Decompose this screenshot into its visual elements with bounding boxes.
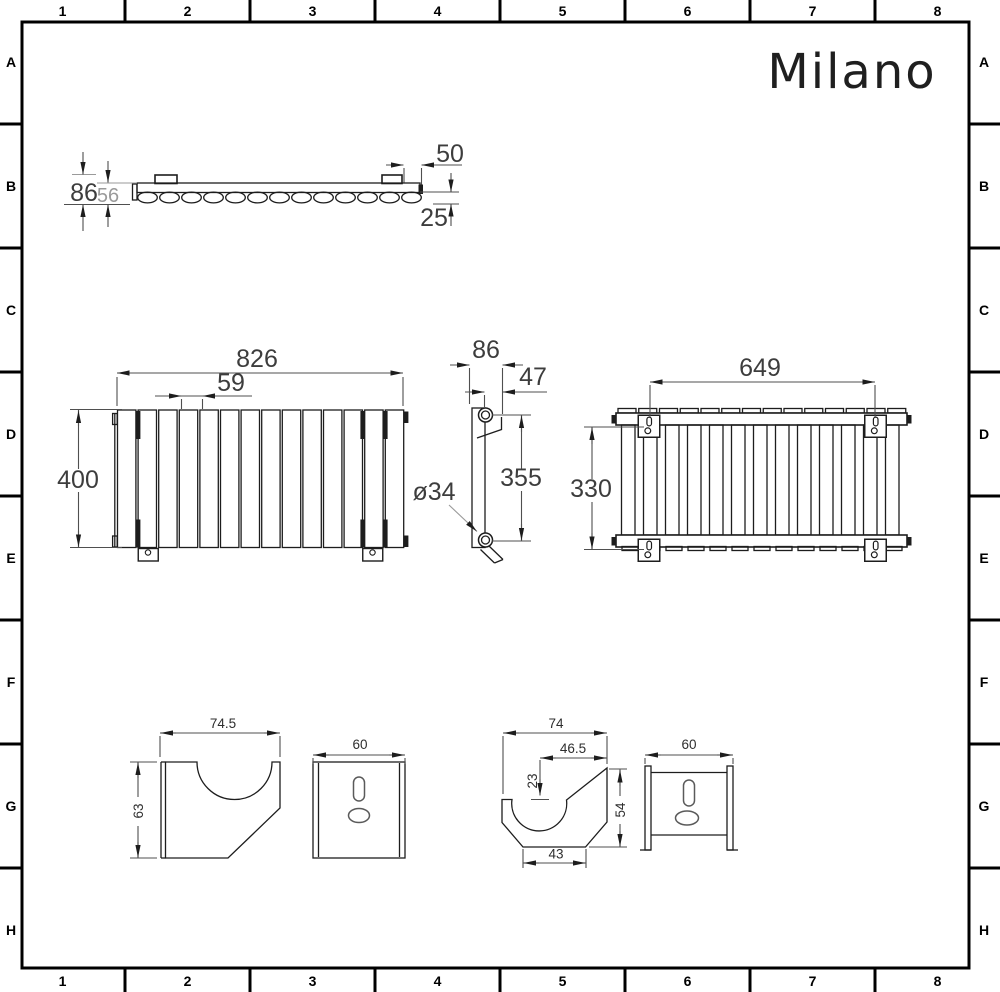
rear-view-wall-bracket	[865, 539, 887, 561]
grid-col-label: 8	[934, 3, 942, 19]
side-view-bottom-pipe	[479, 533, 493, 547]
dim-bracket-a-face-width: 60	[352, 737, 367, 752]
rear-view-wall-bracket	[638, 539, 660, 561]
grid-row-label: F	[7, 674, 16, 690]
front-view: 826 59 400	[57, 345, 408, 561]
grid-col-label: 4	[434, 973, 442, 989]
top-view: 86 56 50 25	[64, 140, 464, 232]
rear-view-wall-bracket	[638, 415, 660, 437]
rear-view-end-tab	[612, 537, 617, 546]
dim-front-height: 400	[57, 466, 99, 494]
dim-bracket-a-height: 63	[131, 803, 146, 818]
grid-row-label: F	[980, 674, 989, 690]
top-view-body	[137, 183, 420, 193]
grid-row-label: B	[979, 178, 989, 194]
rear-view-end-tab	[907, 415, 912, 424]
grid-row-label: E	[6, 550, 15, 566]
dim-rear-bracket-centres-v: 330	[570, 475, 612, 503]
frame-ticks	[0, 0, 1000, 992]
dim-top-end-offset: 50	[436, 140, 464, 168]
brand-logo: Milano	[767, 44, 936, 100]
side-view-panel	[472, 408, 485, 548]
rear-view-end-tab	[907, 537, 912, 546]
top-view-right-cap	[419, 185, 424, 195]
sheet-frame: 1 2 3 4 5 6 7 8 1 2 3 4 5 6 7 8 A B C D …	[0, 0, 1000, 992]
dim-top-tube-depth: 25	[420, 204, 448, 232]
grid-row-label: E	[979, 550, 988, 566]
dim-bracket-b-face-width: 60	[681, 737, 696, 752]
bracket-b-flange	[727, 766, 733, 850]
bracket-b-slot	[684, 780, 695, 806]
grid-col-label: 3	[309, 973, 317, 989]
grid-col-label: 1	[59, 973, 67, 989]
side-view-bottom-hook	[481, 546, 504, 563]
top-view-bracket	[382, 175, 402, 184]
dim-side-tube-diameter: ø34	[412, 478, 455, 506]
grid-row-label: C	[979, 302, 989, 318]
bracket-a-profile	[166, 762, 281, 858]
grid-col-label: 6	[684, 973, 692, 989]
grid-row-label: D	[6, 426, 16, 442]
dim-bracket-b-width: 74	[548, 716, 564, 731]
side-view: 86 47 355 ø34	[412, 336, 547, 563]
grid-row-label: B	[6, 178, 16, 194]
dim-side-overall-depth: 86	[472, 336, 500, 364]
rear-view-end-tab	[612, 415, 617, 424]
dim-front-panel-pitch: 59	[217, 369, 245, 397]
grid-row-label: C	[6, 302, 16, 318]
bracket-b-hole	[676, 811, 699, 825]
bracket-detail-b: 74 46.5 23 54 43	[502, 716, 738, 868]
grid-row-label: G	[6, 798, 17, 814]
grid-row-label: A	[6, 54, 16, 70]
grid-col-label: 2	[184, 973, 192, 989]
front-view-right-tab	[404, 412, 409, 424]
grid-col-label: 3	[309, 3, 317, 19]
dim-side-inner-depth: 47	[519, 363, 547, 391]
dim-bracket-b-base-width: 43	[548, 847, 563, 862]
bracket-b-flange	[645, 766, 651, 850]
grid-row-label: G	[979, 798, 990, 814]
technical-drawing-sheet: 1 2 3 4 5 6 7 8 1 2 3 4 5 6 7 8 A B C D …	[0, 0, 1000, 992]
rear-view-tubes	[622, 425, 900, 535]
grid-col-label: 6	[684, 3, 692, 19]
front-view-right-tab	[404, 536, 409, 548]
dim-rear-bracket-centres-h: 649	[739, 354, 781, 382]
grid-row-label: H	[979, 922, 989, 938]
grid-row-label: H	[6, 922, 16, 938]
side-view-top-pipe	[479, 408, 493, 422]
dim-bracket-a-width: 74.5	[210, 716, 236, 731]
grid-col-label: 5	[559, 3, 567, 19]
rear-view-wall-bracket	[865, 415, 887, 437]
drawing-canvas: 1 2 3 4 5 6 7 8 1 2 3 4 5 6 7 8 A B C D …	[0, 0, 1000, 992]
bracket-a-slot	[354, 777, 365, 801]
grid-col-label: 1	[59, 3, 67, 19]
bracket-a-hole	[349, 809, 370, 823]
top-view-tubes	[138, 192, 422, 203]
grid-col-label: 4	[434, 3, 442, 19]
drawing-border	[22, 22, 969, 968]
top-view-bracket	[155, 175, 177, 184]
bracket-detail-a: 74.5 63 60	[130, 716, 405, 858]
grid-col-label: 2	[184, 3, 192, 19]
grid-row-label: D	[979, 426, 989, 442]
grid-col-label: 7	[809, 973, 817, 989]
bracket-b-profile	[502, 768, 607, 847]
grid-col-label: 5	[559, 973, 567, 989]
front-view-foot	[138, 549, 158, 562]
dim-side-pipe-centres: 355	[500, 464, 542, 492]
front-view-foot	[363, 549, 383, 562]
grid-col-label: 8	[934, 973, 942, 989]
top-view-left-cap	[133, 184, 138, 200]
dim-bracket-b-notch-depth: 23	[525, 773, 540, 788]
grid-col-label: 7	[809, 3, 817, 19]
rear-view: 649 330	[570, 354, 911, 561]
dim-top-body-depth: 56	[97, 185, 119, 207]
dim-bracket-b-notch-offset: 46.5	[560, 741, 586, 756]
dim-bracket-b-height: 54	[613, 802, 628, 818]
dim-top-overall-depth: 86	[70, 179, 98, 207]
grid-row-label: A	[979, 54, 989, 70]
